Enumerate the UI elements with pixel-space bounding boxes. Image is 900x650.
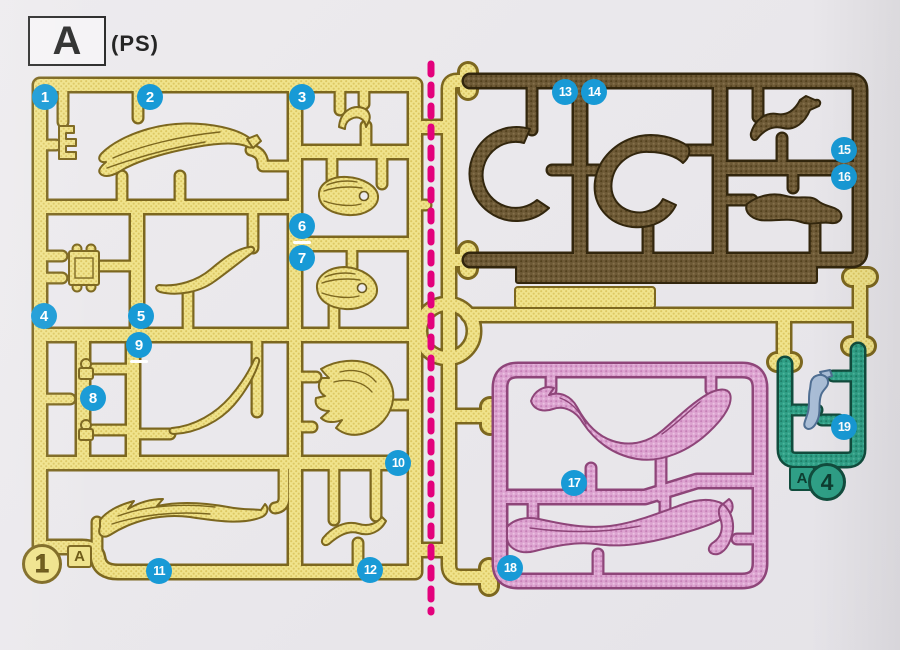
runner-a-yellow: [40, 72, 868, 586]
part-badge-1: 1: [32, 84, 58, 110]
runner-letter: A: [53, 21, 82, 61]
part-18-long-hair-wave: [507, 499, 733, 554]
part-badge-8: 8: [80, 385, 106, 411]
part-badge-5: 5: [128, 303, 154, 329]
instruction-sheet-photo: { "header": { "runner_letter": "A", "mat…: [0, 0, 900, 650]
part-13-crescent: [470, 127, 549, 221]
runner-brown: [470, 81, 860, 283]
runner-letter-small: A: [74, 548, 85, 565]
part-5-hair-strand: [156, 247, 254, 294]
part-badge-6: 6: [289, 213, 315, 239]
runner-pink: [500, 370, 760, 581]
part-badge-18: 18: [497, 555, 523, 581]
part-badge-9: 9: [126, 332, 152, 358]
part-4-winder-block: [69, 245, 99, 292]
runner-number: 1: [35, 550, 49, 579]
part-badge-13: 13: [552, 79, 578, 105]
part-11-long-hair: [99, 499, 267, 537]
part-9-hair-strand: [170, 358, 260, 434]
part-badge-11: 11: [146, 558, 172, 584]
part-badge-15: 15: [831, 137, 857, 163]
part-17-hair-wave: [531, 387, 731, 460]
part-2-hair-swoosh: [99, 123, 261, 176]
part-badge-4: 4: [31, 303, 57, 329]
part-1-clip: [59, 126, 76, 159]
part-badge-17: 17: [561, 470, 587, 496]
part-16-snake-strand: [746, 194, 841, 223]
part-6-face-shell: [319, 177, 378, 215]
runner-number-mark: 1: [22, 544, 62, 584]
part-badge-16: 16: [831, 164, 857, 190]
small-runner-letter: A: [797, 470, 808, 487]
part-7-face-shell: [317, 267, 377, 309]
runner-letter-box: A: [28, 16, 106, 66]
badge-underline: [293, 241, 311, 245]
part-badge-3: 3: [289, 84, 315, 110]
molding-plate-yellow: [515, 287, 655, 308]
runner-letter-tag: A: [67, 545, 92, 568]
part-badge-7: 7: [289, 245, 315, 271]
small-runner-number-mark: 4: [808, 463, 846, 501]
part-badge-12: 12: [357, 557, 383, 583]
part-badge-14: 14: [581, 79, 607, 105]
part-badge-2: 2: [137, 84, 163, 110]
material-code: (PS): [111, 31, 159, 57]
part-badge-19: 19: [831, 414, 857, 440]
small-runner-number: 4: [821, 469, 834, 496]
part-badge-10: 10: [385, 450, 411, 476]
part-10-bang-piece: [316, 361, 394, 435]
badge-underline: [130, 360, 148, 364]
part-14-crescent: [595, 135, 690, 227]
